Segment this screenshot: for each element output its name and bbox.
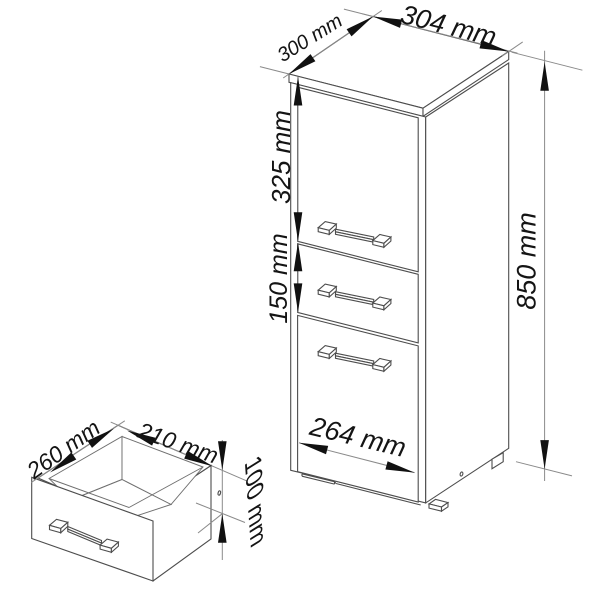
- svg-text:850 mm: 850 mm: [511, 212, 541, 310]
- svg-text:325 mm: 325 mm: [266, 110, 296, 204]
- svg-text:150 mm: 150 mm: [265, 233, 293, 323]
